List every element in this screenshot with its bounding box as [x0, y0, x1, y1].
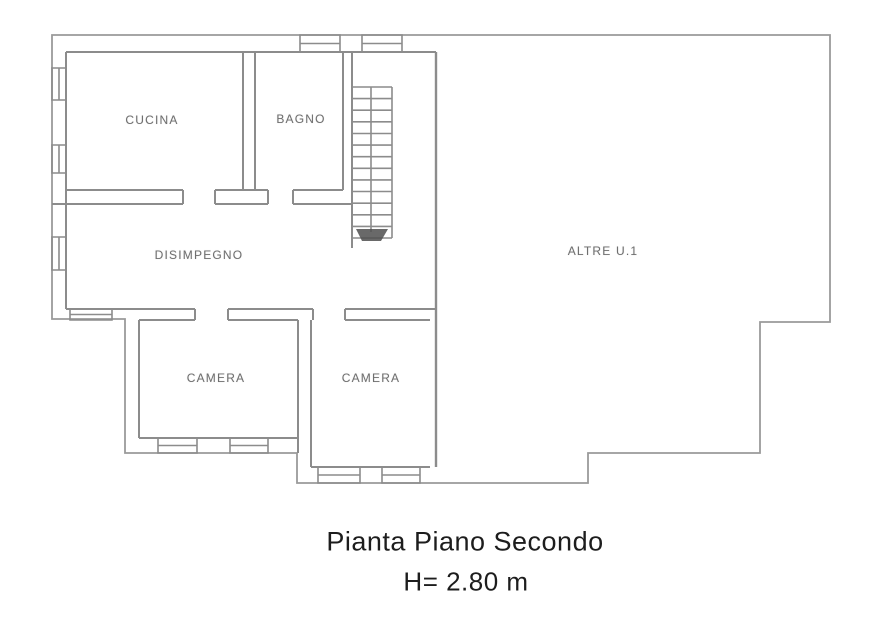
- room-label-altre-ui: ALTRE U.1: [568, 244, 639, 258]
- stair-direction-mark: [356, 229, 388, 241]
- room-label-bagno: BAGNO: [276, 112, 325, 126]
- room-label-camera-2: CAMERA: [342, 371, 401, 385]
- plan-height-note: H= 2.80 m: [403, 567, 528, 598]
- room-label-cucina: CUCINA: [125, 113, 178, 127]
- plan-title: Pianta Piano Secondo: [326, 527, 603, 558]
- interior-walls: [52, 52, 436, 467]
- room-label-disimpegno: DISIMPEGNO: [155, 248, 244, 262]
- room-label-camera-1: CAMERA: [187, 371, 246, 385]
- floor-plan-page: CUCINA BAGNO DISIMPEGNO ALTRE U.1 CAMERA…: [0, 0, 892, 622]
- staircase: [352, 87, 392, 241]
